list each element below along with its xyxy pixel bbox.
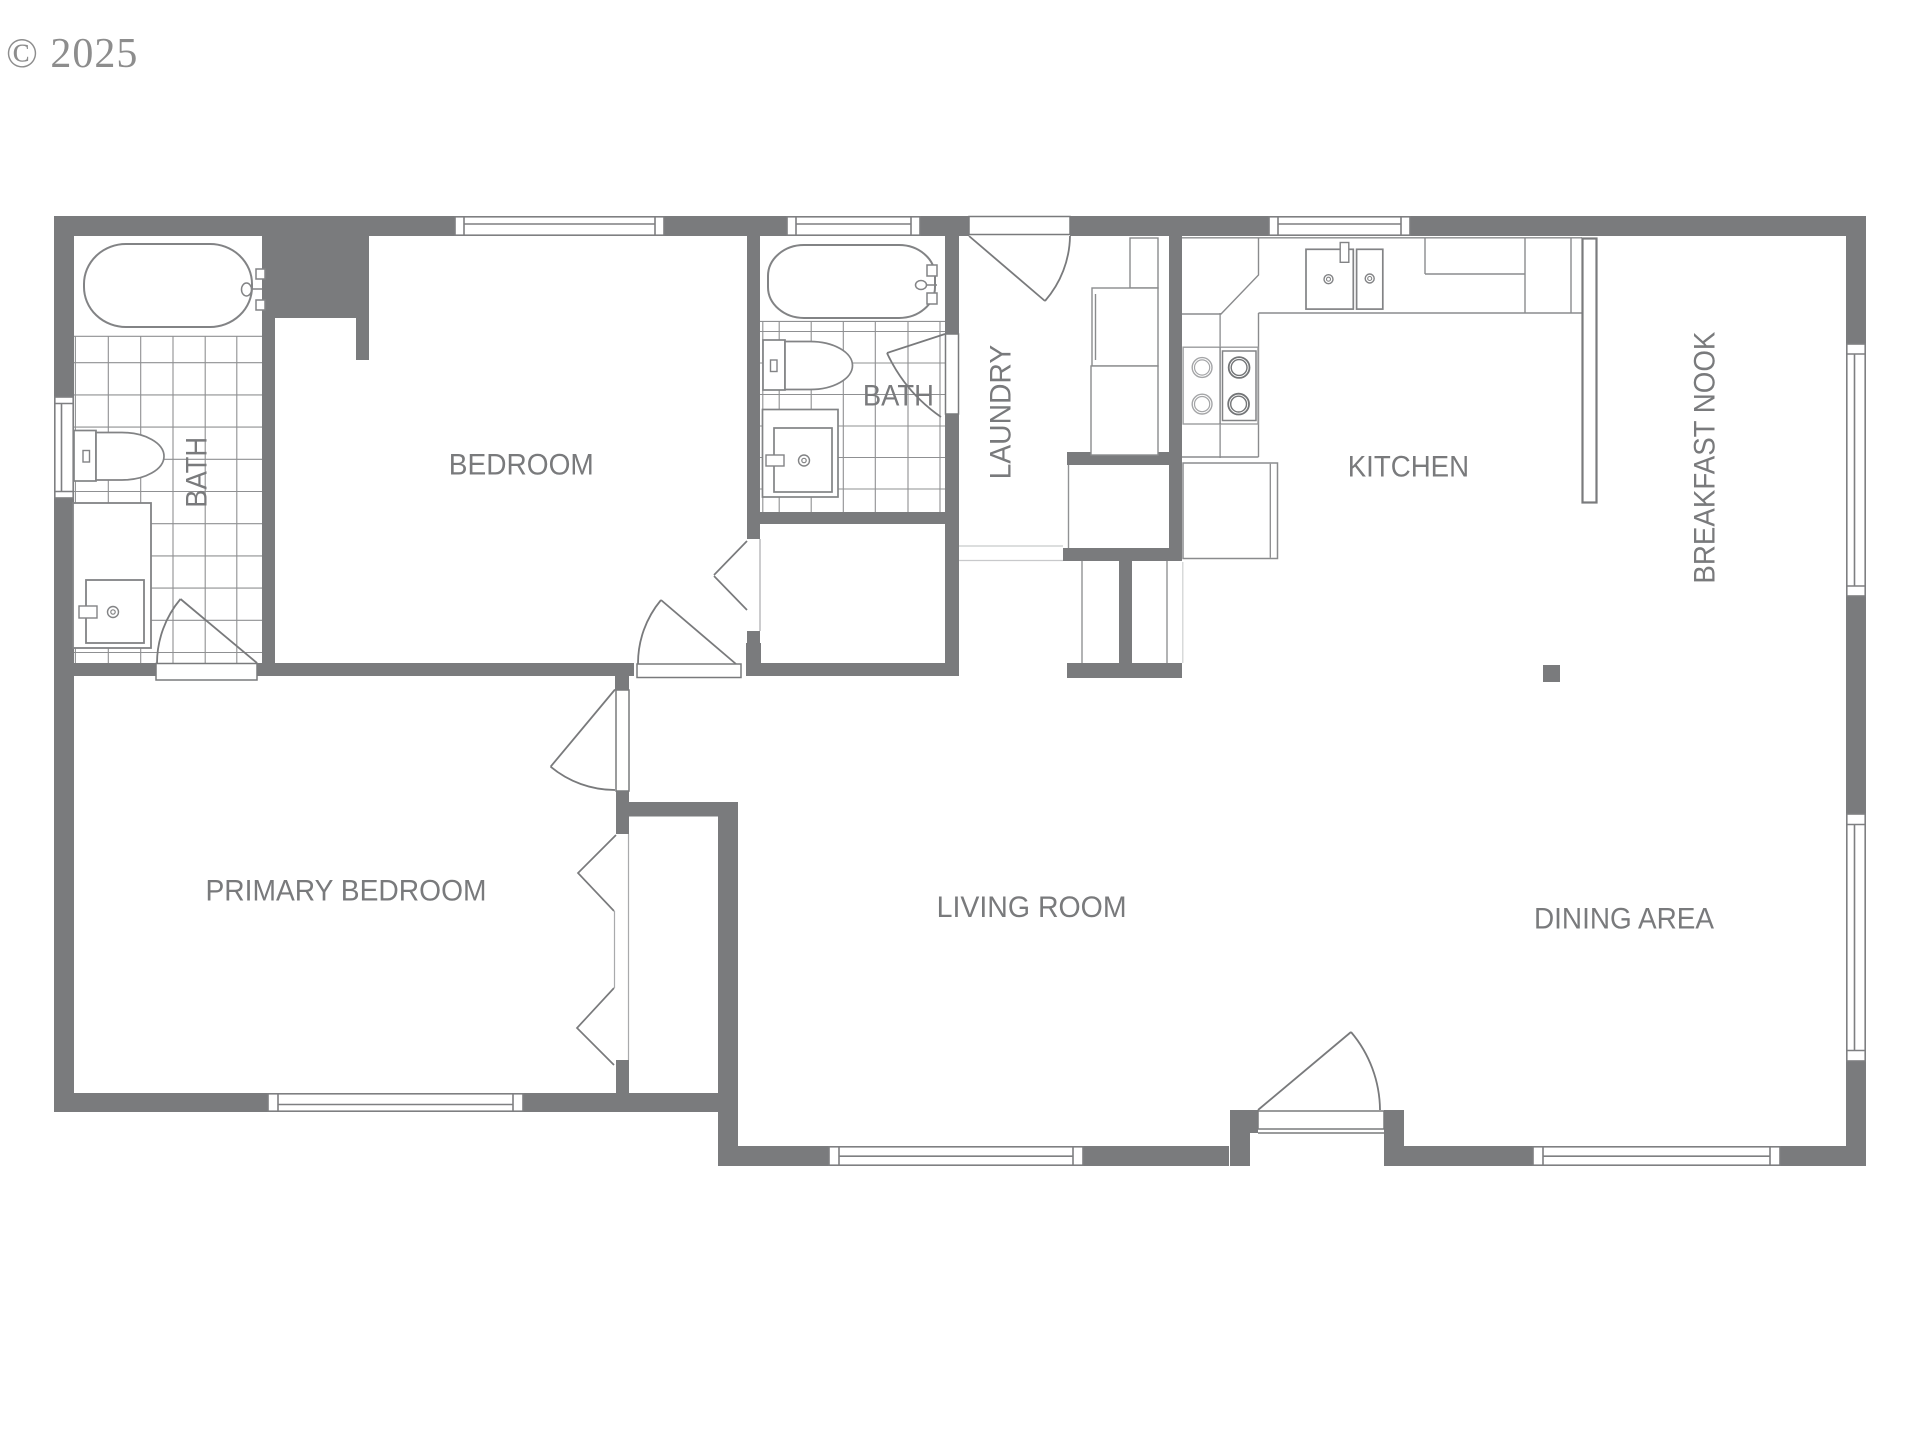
svg-text:BATH: BATH [863,380,934,413]
svg-text:BREAKFAST NOOK: BREAKFAST NOOK [1688,331,1721,583]
svg-text:LAUNDRY: LAUNDRY [984,345,1017,480]
svg-text:PRIMARY BEDROOM: PRIMARY BEDROOM [206,875,487,908]
svg-text:DINING AREA: DINING AREA [1534,903,1714,936]
svg-text:LIVING ROOM: LIVING ROOM [937,891,1127,924]
svg-text:© 2025: © 2025 [6,31,138,77]
svg-text:BEDROOM: BEDROOM [449,448,594,481]
svg-text:KITCHEN: KITCHEN [1348,450,1469,483]
svg-text:BATH: BATH [181,437,214,508]
